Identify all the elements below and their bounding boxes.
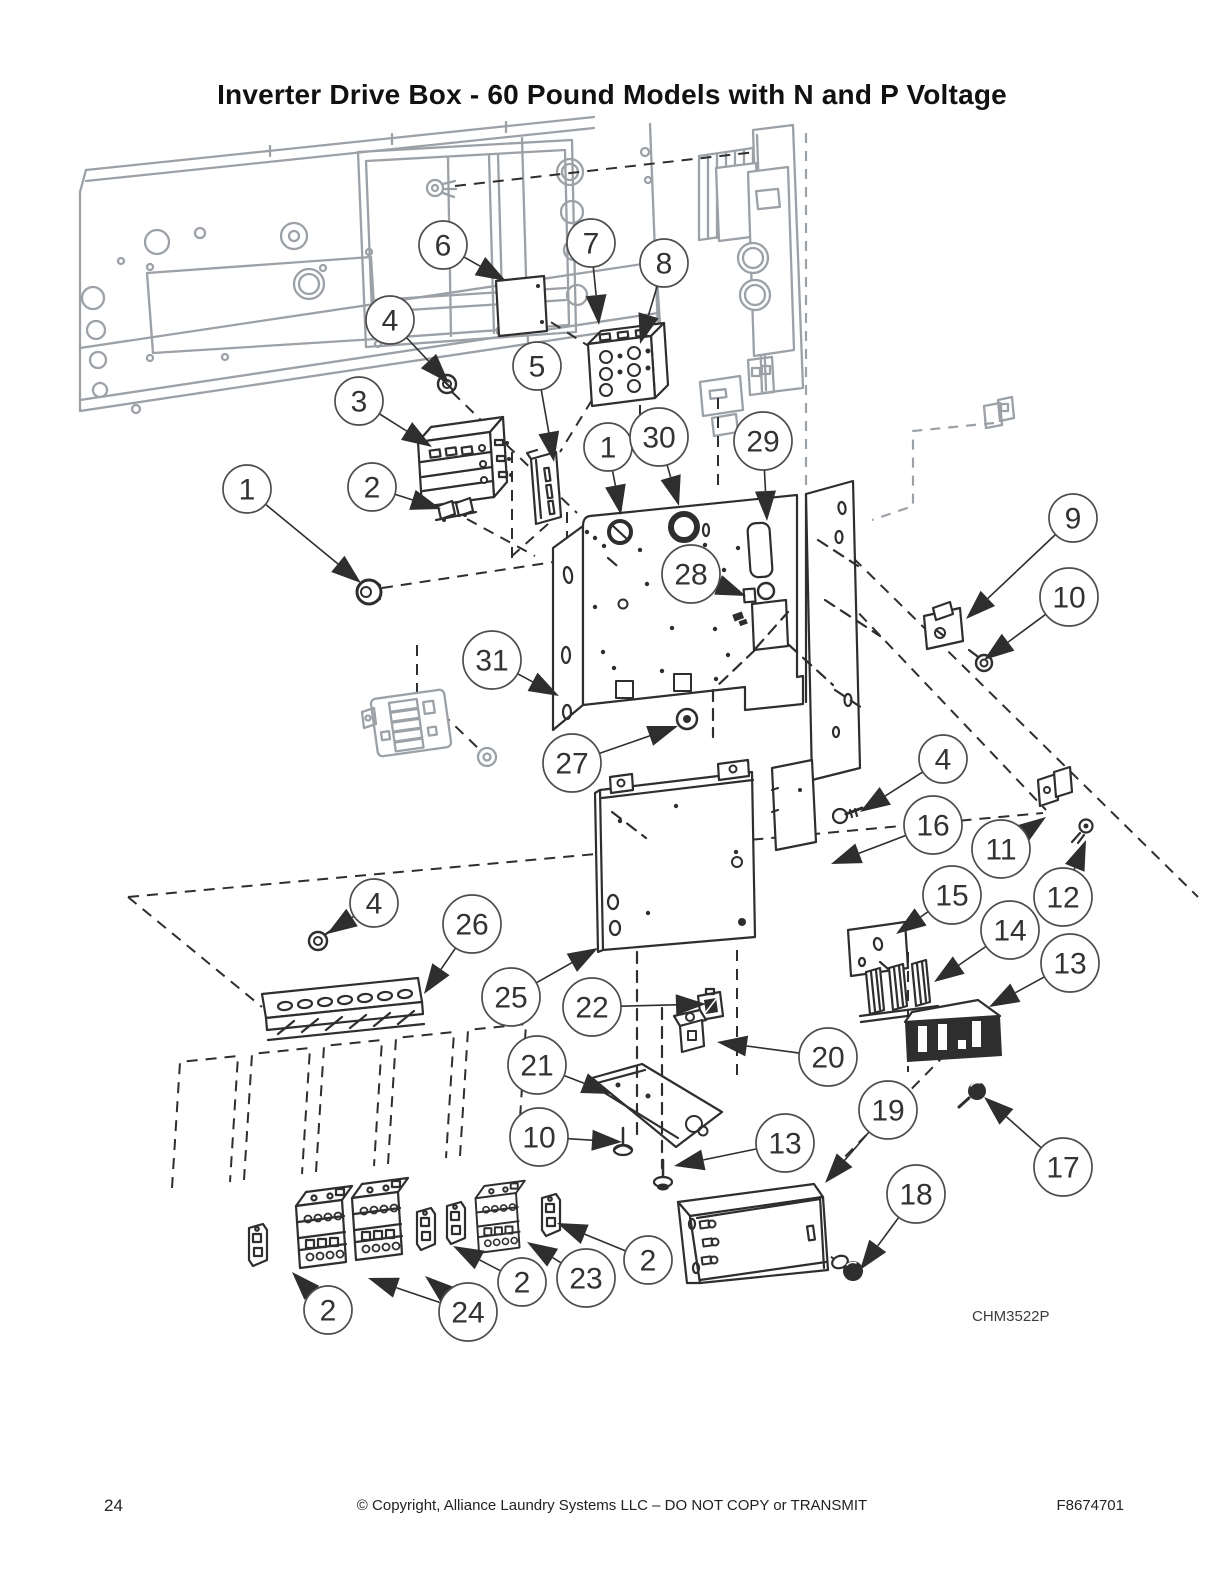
svg-text:14: 14 (993, 915, 1026, 948)
callout-21: 21 (508, 1036, 612, 1094)
document-number: F8674701 (1056, 1497, 1124, 1514)
manual-page: Inverter Drive Box - 60 Pound Models wit… (0, 0, 1224, 1584)
svg-text:18: 18 (899, 1179, 932, 1212)
callout-15: 15 (896, 866, 981, 934)
callout-31: 31 (463, 631, 559, 696)
svg-text:13: 13 (1053, 948, 1086, 981)
callout-4: 4 (860, 735, 967, 812)
mounting-panel (553, 481, 880, 780)
screw-13-bottom (654, 1160, 672, 1191)
svg-text:15: 15 (935, 880, 968, 913)
svg-text:25: 25 (494, 982, 527, 1015)
svg-text:19: 19 (871, 1095, 904, 1128)
clip-2-b (417, 1208, 435, 1250)
callout-4: 4 (327, 879, 398, 934)
bracket-20 (674, 1010, 706, 1052)
svg-text:3: 3 (351, 386, 368, 419)
svg-text:7: 7 (583, 228, 600, 261)
plate-16 (772, 760, 816, 850)
din-rail-5 (527, 450, 561, 524)
relay-board-gray (362, 689, 496, 766)
callout-30: 30 (630, 408, 688, 506)
screw-12 (1072, 820, 1093, 844)
callout-11: 11 (972, 817, 1046, 878)
callout-1: 1 (584, 423, 632, 515)
svg-text:9: 9 (1065, 503, 1082, 536)
svg-text:4: 4 (366, 888, 383, 921)
callout-17: 17 (984, 1097, 1092, 1196)
bracket-9 (924, 602, 963, 649)
din-rail-26-group (262, 927, 424, 1040)
svg-text:21: 21 (520, 1050, 553, 1083)
svg-text:2: 2 (640, 1245, 657, 1278)
svg-text:20: 20 (811, 1042, 844, 1075)
callout-1: 1 (223, 465, 361, 583)
svg-text:5: 5 (529, 351, 546, 384)
svg-text:2: 2 (364, 472, 381, 505)
svg-text:1: 1 (600, 432, 617, 465)
svg-text:27: 27 (555, 748, 588, 781)
svg-text:2: 2 (320, 1295, 337, 1328)
clamp-11 (1038, 767, 1072, 806)
svg-text:2: 2 (514, 1267, 531, 1300)
callout-6: 6 (419, 221, 506, 281)
callout-24: 24 (368, 1276, 497, 1341)
svg-text:23: 23 (569, 1263, 602, 1296)
contactor-24-a (296, 1186, 352, 1268)
svg-text:8: 8 (656, 248, 673, 281)
svg-text:4: 4 (382, 305, 399, 338)
svg-text:31: 31 (475, 645, 508, 678)
svg-text:10: 10 (522, 1122, 555, 1155)
callout-18: 18 (860, 1165, 945, 1270)
sub-panel-25 (595, 760, 755, 952)
terminal-block-8 (588, 323, 668, 406)
bushing-1 (357, 580, 381, 604)
bracket-21 (592, 1064, 722, 1147)
contactor-24-b (352, 1178, 408, 1260)
contactor-row (249, 1178, 560, 1268)
screw-17 (959, 1082, 986, 1107)
callout-5: 5 (513, 342, 561, 462)
screw-18 (830, 1254, 863, 1281)
svg-text:30: 30 (642, 422, 675, 455)
svg-text:6: 6 (435, 230, 452, 263)
clip-2-d (542, 1194, 560, 1236)
drive-box-19 (678, 1184, 828, 1283)
screw-4-right (833, 808, 862, 823)
din-rail-26 (262, 978, 424, 1040)
svg-text:17: 17 (1046, 1152, 1079, 1185)
svg-text:28: 28 (674, 559, 707, 592)
svg-text:22: 22 (575, 992, 608, 1025)
svg-text:12: 12 (1046, 882, 1079, 915)
callout-3: 3 (335, 377, 432, 447)
svg-text:1: 1 (239, 474, 256, 507)
inverter-drive-unit (699, 125, 1014, 436)
figure-code: CHM3522P (972, 1308, 1050, 1325)
page-footer: 24 © Copyright, Alliance Laundry Systems… (0, 1494, 1224, 1524)
svg-text:29: 29 (746, 426, 779, 459)
callout-12: 12 (1034, 840, 1092, 926)
svg-text:4: 4 (935, 744, 952, 777)
cabinet-rear-panel (80, 117, 660, 413)
callout-10: 10 (510, 1108, 622, 1166)
svg-text:11: 11 (985, 834, 1016, 867)
svg-text:16: 16 (916, 810, 949, 843)
svg-text:10: 10 (1052, 582, 1085, 615)
svg-text:26: 26 (455, 909, 488, 942)
contactor-23 (476, 1181, 525, 1253)
svg-text:13: 13 (768, 1128, 801, 1161)
copyright-notice: © Copyright, Alliance Laundry Systems LL… (0, 1497, 1224, 1514)
exploded-parts-diagram: 6784531302921928103127416111512141342625… (0, 0, 1224, 1584)
clip-2-a (249, 1224, 267, 1266)
clip-2-c (447, 1202, 465, 1244)
callout-2: 2 (292, 1272, 352, 1334)
contactor-3 (418, 417, 513, 507)
screw-10-right (969, 650, 992, 671)
callout-10: 10 (984, 568, 1098, 660)
svg-text:24: 24 (451, 1297, 484, 1330)
